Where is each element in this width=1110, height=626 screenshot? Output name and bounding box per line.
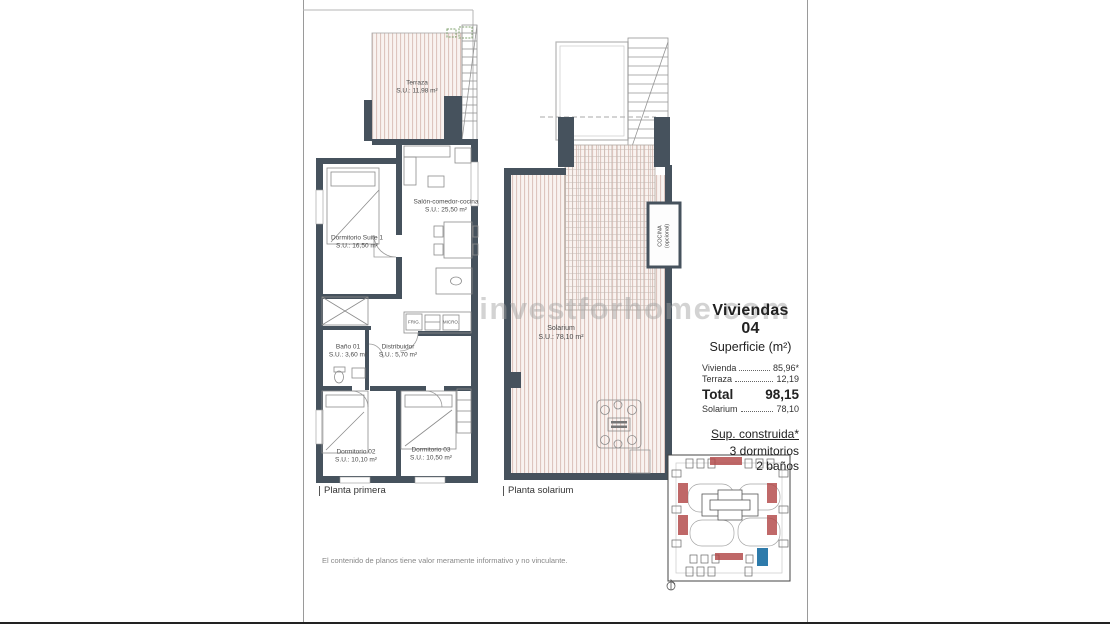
feature-bedrooms: 3 dormitorios [702, 444, 799, 459]
disclaimer-text: El contenido de planos tiene valor meram… [322, 556, 568, 565]
plan-solarium-drawing [504, 38, 680, 480]
room-label-cocina: COCINA (opcional) [657, 216, 670, 256]
dotted-leader [741, 411, 774, 412]
room-label-bano: Baño 01 S.U.: 3,60 m² [324, 344, 372, 361]
kitchen-label-micro: MICRO. [443, 320, 459, 325]
info-panel: Viviendas 04 Superficie (m²) Vivienda 85… [702, 302, 799, 474]
floorplan-page: investforhome.com Terraza S.U.: 11,98 m²… [0, 0, 1110, 626]
room-label-salon: Salón-comedor-cocina S.U.: 25,50 m² [405, 199, 487, 216]
room-label-distribuidor: Distribuidor S.U.: 5,70 m² [371, 344, 425, 361]
room-label-dorm03: Dormitorio 03 S.U.: 10,50 m² [401, 447, 461, 464]
surface-row-terraza: Terraza 12,19 [702, 374, 799, 384]
dotted-leader [735, 381, 773, 382]
dotted-leader [739, 370, 770, 371]
built-surface-block: Sup. construida* 3 dormitorios 2 baños [702, 427, 799, 474]
kitchen-label-frig: FRIG. [408, 320, 420, 325]
stairs-primera [462, 25, 477, 140]
site-plan-unit-highlight [757, 548, 768, 566]
built-surface-heading: Sup. construida* [702, 427, 799, 442]
site-plan [667, 455, 790, 590]
surface-row-total: Total 98,15 [702, 387, 799, 402]
surface-row-solarium: Solarium 78,10 [702, 404, 799, 414]
surface-subtitle: Superficie (m²) [702, 340, 799, 354]
room-label-solarium: Solarium S.U.: 78,10 m² [526, 324, 596, 342]
plan-title-solarium: Planta solarium [503, 486, 573, 496]
surface-row-vivienda: Vivienda 85,96* [702, 363, 799, 373]
pergola-grid [565, 145, 655, 310]
plan-title-primera: Planta primera [319, 486, 386, 496]
unit-title: Viviendas 04 [702, 302, 799, 338]
room-label-terraza: Terraza S.U.: 11,98 m² [387, 80, 447, 97]
room-label-dorm02: Dormitorio 02 S.U.: 10,10 m² [326, 449, 386, 466]
feature-bathrooms: 2 baños [702, 459, 799, 474]
walls-primera [316, 96, 478, 483]
room-label-suite: Dormitorio Suite 1 S.U.: 16,50 m² [330, 235, 384, 252]
